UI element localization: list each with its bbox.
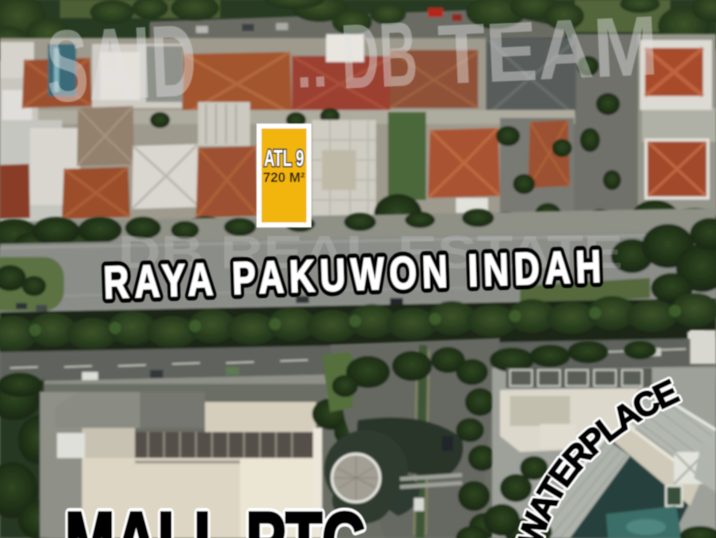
- svg-text:MALL PTC: MALL PTC: [65, 496, 365, 538]
- svg-text:..: ..: [294, 25, 329, 102]
- svg-text:ATL 9: ATL 9: [264, 145, 304, 171]
- svg-text:720 M²: 720 M²: [263, 169, 305, 185]
- svg-text:DB: DB: [339, 3, 420, 108]
- svg-text:TEAM: TEAM: [436, 0, 660, 102]
- svg-text:SAID: SAID: [44, 3, 199, 124]
